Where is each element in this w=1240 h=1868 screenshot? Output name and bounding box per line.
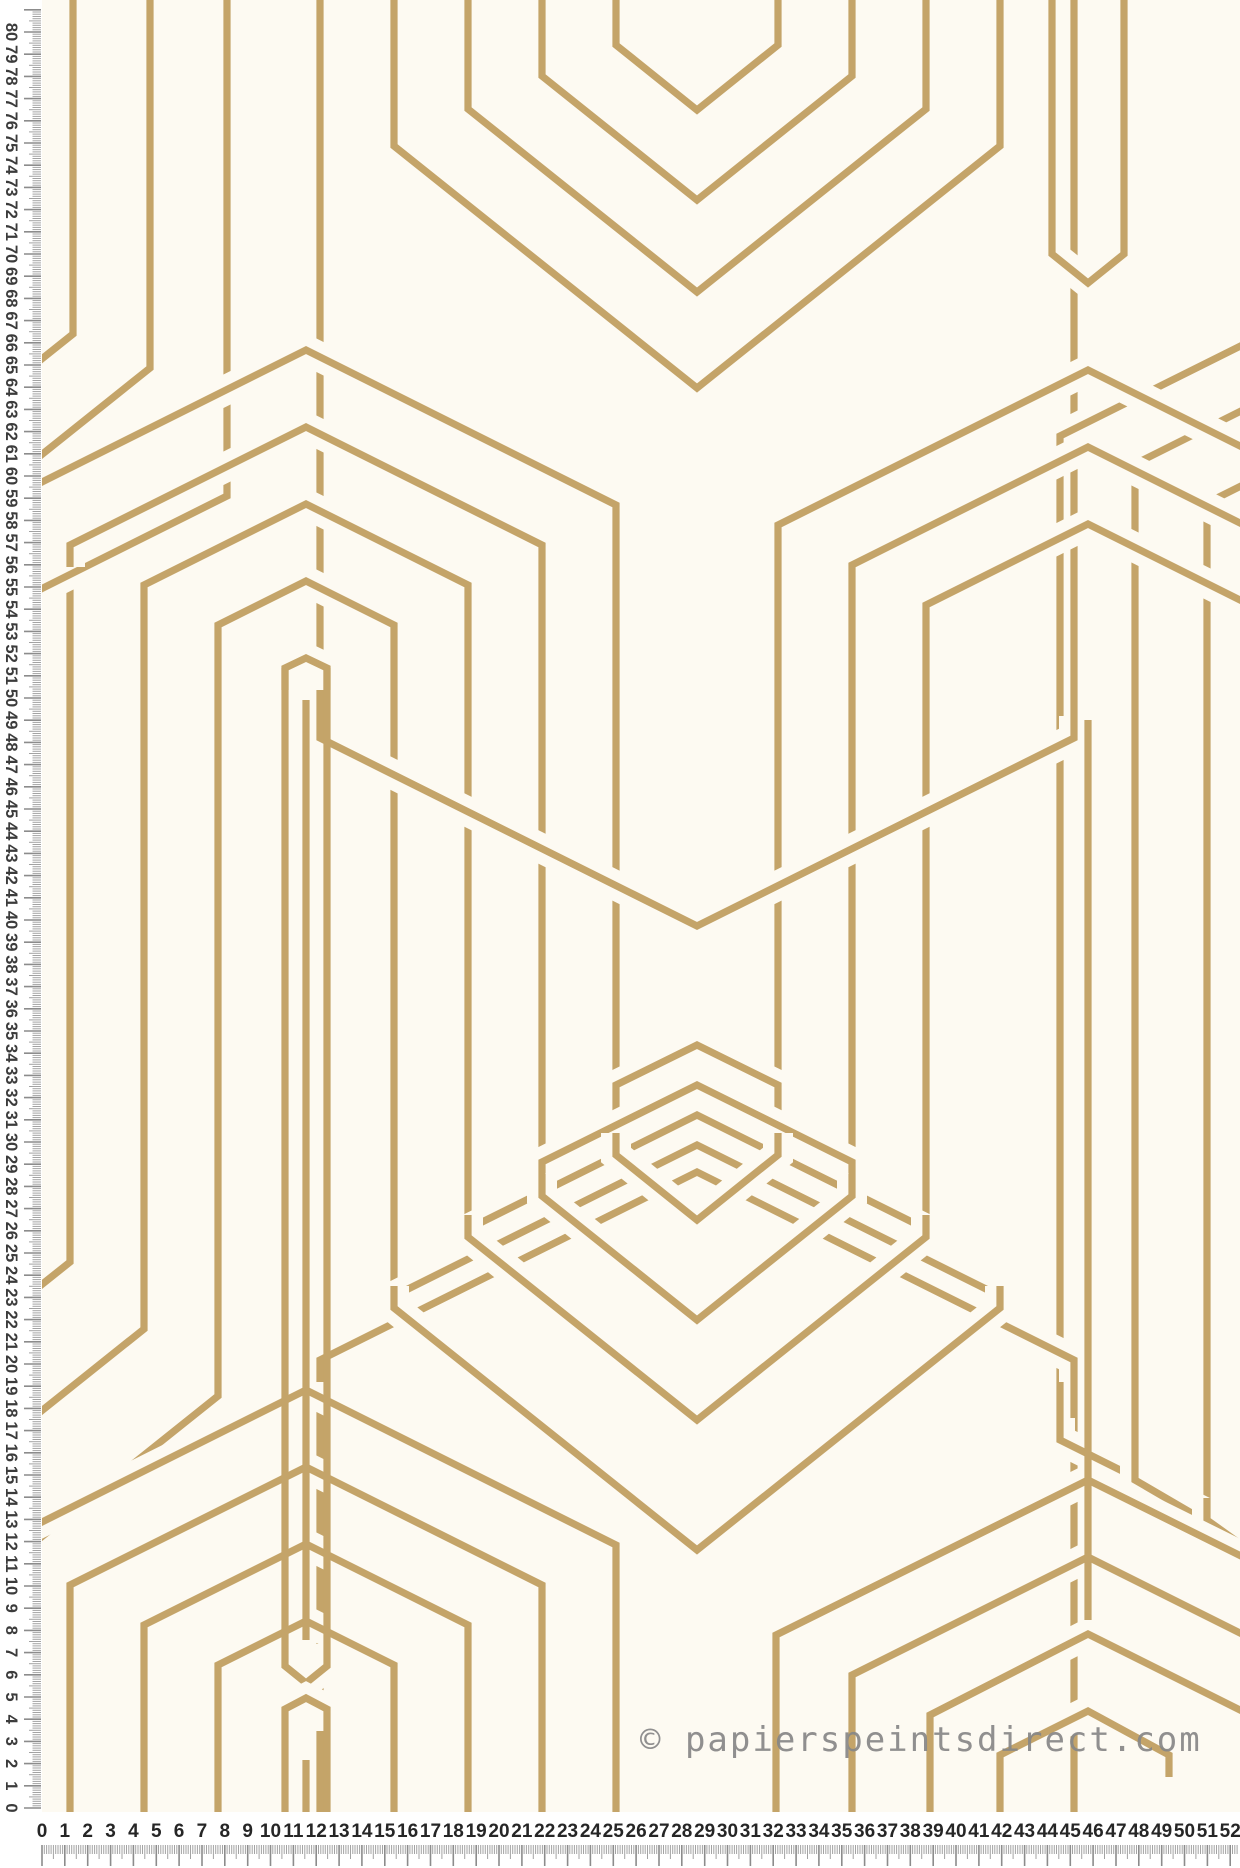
svg-text:37: 37 <box>877 1821 898 1842</box>
svg-text:44: 44 <box>2 822 20 841</box>
svg-text:49: 49 <box>1151 1821 1172 1842</box>
svg-text:24: 24 <box>2 1266 20 1285</box>
svg-text:53: 53 <box>2 622 20 640</box>
svg-text:39: 39 <box>923 1821 944 1842</box>
svg-text:38: 38 <box>900 1821 921 1842</box>
svg-text:18: 18 <box>443 1821 464 1842</box>
svg-text:52: 52 <box>2 644 20 662</box>
wallpaper-swatch: © papierspeintsdirect.com <box>42 0 1240 1812</box>
svg-text:25: 25 <box>2 1244 20 1262</box>
svg-text:17: 17 <box>2 1421 20 1439</box>
svg-text:29: 29 <box>694 1821 715 1842</box>
svg-text:5: 5 <box>2 1692 20 1701</box>
svg-text:4: 4 <box>128 1821 139 1842</box>
svg-text:60: 60 <box>2 467 20 485</box>
svg-text:36: 36 <box>2 1000 20 1018</box>
svg-text:1: 1 <box>60 1821 71 1842</box>
svg-text:16: 16 <box>2 1444 20 1462</box>
svg-text:9: 9 <box>2 1604 20 1613</box>
svg-text:1: 1 <box>2 1781 20 1790</box>
svg-text:47: 47 <box>2 755 20 773</box>
svg-text:56: 56 <box>2 556 20 574</box>
svg-text:12: 12 <box>2 1532 20 1550</box>
svg-text:46: 46 <box>2 778 20 796</box>
svg-text:48: 48 <box>2 733 20 751</box>
svg-text:34: 34 <box>808 1821 830 1842</box>
svg-text:69: 69 <box>2 267 20 285</box>
svg-text:10: 10 <box>2 1577 20 1595</box>
svg-text:78: 78 <box>2 67 20 85</box>
svg-text:27: 27 <box>2 1199 20 1217</box>
svg-text:51: 51 <box>1197 1821 1219 1842</box>
svg-text:32: 32 <box>763 1821 784 1842</box>
svg-text:24: 24 <box>580 1821 602 1842</box>
svg-text:43: 43 <box>2 844 20 862</box>
svg-text:45: 45 <box>2 800 20 818</box>
svg-text:14: 14 <box>2 1488 20 1507</box>
svg-text:51: 51 <box>2 667 20 685</box>
svg-text:8: 8 <box>2 1626 20 1635</box>
svg-text:30: 30 <box>717 1821 738 1842</box>
svg-text:64: 64 <box>2 378 20 397</box>
svg-text:7: 7 <box>2 1648 20 1657</box>
svg-text:20: 20 <box>488 1821 509 1842</box>
svg-text:35: 35 <box>831 1821 853 1842</box>
svg-text:33: 33 <box>785 1821 806 1842</box>
svg-text:58: 58 <box>2 511 20 529</box>
svg-text:37: 37 <box>2 977 20 995</box>
svg-text:46: 46 <box>1083 1821 1104 1842</box>
wallpaper-product-photo[interactable]: © papierspeintsdirect.com 01234567891011… <box>0 0 1240 1868</box>
svg-text:36: 36 <box>854 1821 875 1842</box>
watermark-text: © papierspeintsdirect.com <box>640 1716 1240 1764</box>
svg-text:74: 74 <box>2 156 20 175</box>
wallpaper-pattern-svg <box>42 0 1240 1812</box>
svg-text:31: 31 <box>740 1821 762 1842</box>
svg-text:19: 19 <box>466 1821 487 1842</box>
svg-text:6: 6 <box>174 1821 185 1842</box>
svg-text:62: 62 <box>2 422 20 440</box>
svg-text:57: 57 <box>2 533 20 551</box>
svg-text:7: 7 <box>197 1821 208 1842</box>
svg-text:54: 54 <box>2 600 20 619</box>
svg-text:5: 5 <box>151 1821 162 1842</box>
svg-text:66: 66 <box>2 334 20 352</box>
svg-text:71: 71 <box>2 223 20 241</box>
svg-text:72: 72 <box>2 200 20 218</box>
svg-text:16: 16 <box>397 1821 418 1842</box>
svg-text:55: 55 <box>2 578 20 596</box>
svg-text:10: 10 <box>260 1821 281 1842</box>
svg-text:6: 6 <box>2 1670 20 1679</box>
svg-text:9: 9 <box>242 1821 253 1842</box>
svg-text:13: 13 <box>2 1510 20 1528</box>
svg-text:68: 68 <box>2 289 20 307</box>
svg-text:41: 41 <box>2 889 20 907</box>
svg-text:21: 21 <box>511 1821 533 1842</box>
svg-text:28: 28 <box>671 1821 692 1842</box>
svg-text:33: 33 <box>2 1066 20 1084</box>
svg-text:43: 43 <box>1014 1821 1035 1842</box>
svg-text:42: 42 <box>2 866 20 884</box>
svg-text:8: 8 <box>220 1821 231 1842</box>
svg-text:52: 52 <box>1220 1821 1240 1842</box>
svg-text:22: 22 <box>534 1821 555 1842</box>
svg-text:3: 3 <box>2 1737 20 1746</box>
svg-text:18: 18 <box>2 1399 20 1417</box>
svg-text:47: 47 <box>1105 1821 1126 1842</box>
svg-text:80: 80 <box>2 23 20 41</box>
svg-text:39: 39 <box>2 933 20 951</box>
svg-text:4: 4 <box>2 1715 20 1725</box>
svg-text:79: 79 <box>2 45 20 63</box>
svg-text:59: 59 <box>2 489 20 507</box>
svg-text:50: 50 <box>1174 1821 1195 1842</box>
svg-text:2: 2 <box>2 1759 20 1768</box>
svg-text:44: 44 <box>1037 1821 1059 1842</box>
svg-text:61: 61 <box>2 445 20 463</box>
svg-text:45: 45 <box>1060 1821 1082 1842</box>
svg-text:14: 14 <box>351 1821 373 1842</box>
svg-text:77: 77 <box>2 89 20 107</box>
svg-text:21: 21 <box>2 1333 20 1351</box>
svg-text:26: 26 <box>626 1821 647 1842</box>
svg-text:65: 65 <box>2 356 20 374</box>
svg-text:3: 3 <box>105 1821 116 1842</box>
svg-text:23: 23 <box>2 1288 20 1306</box>
svg-text:27: 27 <box>648 1821 669 1842</box>
svg-text:25: 25 <box>603 1821 625 1842</box>
svg-text:22: 22 <box>2 1310 20 1328</box>
svg-text:12: 12 <box>306 1821 327 1842</box>
svg-text:29: 29 <box>2 1155 20 1173</box>
svg-text:15: 15 <box>374 1821 396 1842</box>
svg-text:23: 23 <box>557 1821 578 1842</box>
horizontal-ruler: 0123456789101112131415161718192021222324… <box>0 1812 1240 1868</box>
svg-text:67: 67 <box>2 311 20 329</box>
svg-text:30: 30 <box>2 1133 20 1151</box>
svg-text:63: 63 <box>2 400 20 418</box>
svg-text:40: 40 <box>945 1821 966 1842</box>
svg-text:32: 32 <box>2 1088 20 1106</box>
svg-text:15: 15 <box>2 1466 20 1484</box>
svg-text:34: 34 <box>2 1044 20 1063</box>
svg-text:48: 48 <box>1128 1821 1149 1842</box>
svg-text:28: 28 <box>2 1177 20 1195</box>
svg-text:76: 76 <box>2 112 20 130</box>
svg-text:26: 26 <box>2 1222 20 1240</box>
svg-text:0: 0 <box>37 1821 48 1842</box>
svg-text:17: 17 <box>420 1821 441 1842</box>
svg-text:35: 35 <box>2 1022 20 1040</box>
svg-text:19: 19 <box>2 1377 20 1395</box>
svg-text:73: 73 <box>2 178 20 196</box>
svg-text:70: 70 <box>2 245 20 263</box>
svg-text:2: 2 <box>82 1821 93 1842</box>
svg-text:11: 11 <box>283 1821 304 1842</box>
svg-text:50: 50 <box>2 689 20 707</box>
vertical-ruler: 0123456789101112131415161718192021222324… <box>0 0 42 1812</box>
svg-text:38: 38 <box>2 955 20 973</box>
svg-text:75: 75 <box>2 134 20 152</box>
svg-text:40: 40 <box>2 911 20 929</box>
svg-text:11: 11 <box>2 1555 20 1572</box>
svg-text:41: 41 <box>968 1821 990 1842</box>
svg-text:13: 13 <box>328 1821 349 1842</box>
svg-text:20: 20 <box>2 1355 20 1373</box>
svg-text:0: 0 <box>2 1803 20 1812</box>
svg-text:49: 49 <box>2 711 20 729</box>
svg-text:42: 42 <box>991 1821 1012 1842</box>
svg-text:31: 31 <box>2 1111 20 1129</box>
